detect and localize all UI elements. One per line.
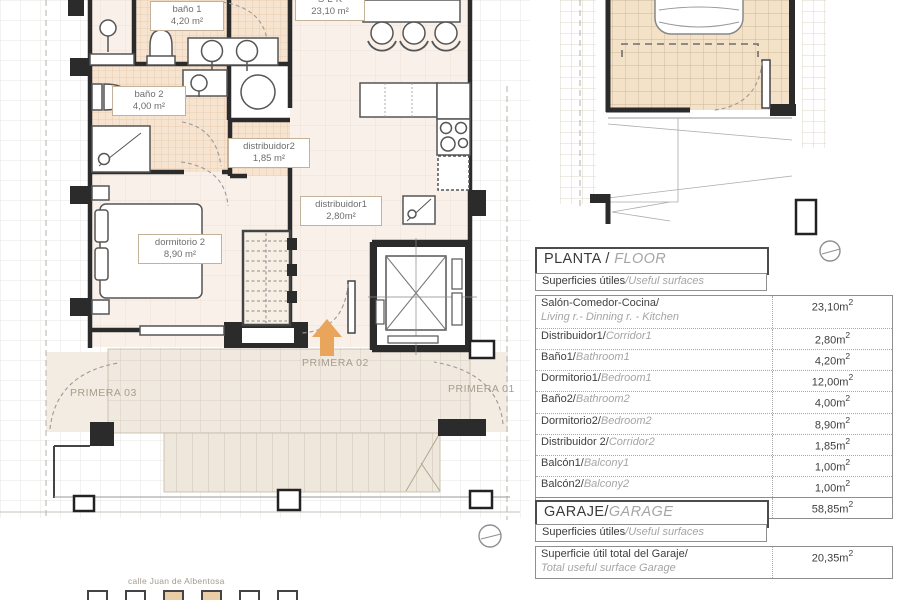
room-area: 8,90 m² xyxy=(142,249,218,261)
floorplan-sheet: S-L-K 23,10 m² baño 1 4,20 m² baño 2 4,0… xyxy=(0,0,900,600)
zone-label-primera-02: PRIMERA 02 xyxy=(302,357,369,369)
garage-floor-plan-drawing xyxy=(560,0,900,262)
apartment-floor-plan-drawing xyxy=(0,0,530,600)
table-row: Salón-Comedor-Cocina/Living r.- Dinning … xyxy=(536,296,892,328)
room-label-distribuidor2: distribuidor2 1,85 m² xyxy=(228,138,310,168)
planta-section-title: PLANTA / FLOOR xyxy=(535,247,769,275)
planta-subtitle: Superficies útiles/Useful surfaces xyxy=(535,273,767,291)
planta-subtitle-es: Superficies útiles xyxy=(542,275,625,287)
table-row: Dormitorio1/Bedroom1 12,00m2 xyxy=(536,370,892,391)
garaje-title-es: GARAJE/ xyxy=(544,504,609,520)
table-row: Balcón1/Balcony1 1,00m2 xyxy=(536,455,892,476)
car-symbol xyxy=(655,0,743,34)
room-label-dormitorio2: dormitorio 2 8,90 m² xyxy=(138,234,222,264)
garaje-title-en: GARAGE xyxy=(609,504,673,520)
garaje-subtitle-es: Superficies útiles xyxy=(542,526,625,538)
room-name: S-L-K xyxy=(318,0,342,5)
room-name: distribuidor2 xyxy=(243,141,295,152)
garaje-subtitle: Superficies útiles/Useful surfaces xyxy=(535,524,767,542)
table-row: Balcón2/Balcony2 1,00m2 xyxy=(536,476,892,497)
room-area: 23,10 m² xyxy=(299,6,361,18)
room-label-bano2: baño 2 4,00 m² xyxy=(112,86,186,116)
planta-title-es: PLANTA / xyxy=(544,251,614,267)
planta-surfaces-table: Salón-Comedor-Cocina/Living r.- Dinning … xyxy=(535,295,893,519)
room-name: dormitorio 2 xyxy=(155,237,205,248)
stairs xyxy=(243,231,297,325)
table-row: Baño2/Bathroom2 4,00m2 xyxy=(536,391,892,412)
table-row: Distribuidor1/Corridor1 2,80m2 xyxy=(536,328,892,349)
section-marker-icon xyxy=(820,241,840,261)
table-row: Superficie útil total del Garaje/Total u… xyxy=(536,547,892,578)
room-area: 4,00 m² xyxy=(116,101,182,113)
table-row: Baño1/Bathroom1 4,20m2 xyxy=(536,349,892,370)
room-name: baño 1 xyxy=(172,4,201,15)
room-name: distribuidor1 xyxy=(315,199,367,210)
zone-label-primera-01: PRIMERA 01 xyxy=(448,383,515,395)
room-name: baño 2 xyxy=(134,89,163,100)
street-label: calle Juan de Albentosa xyxy=(128,576,225,586)
room-area: 2,80m² xyxy=(304,211,378,223)
room-area: 4,20 m² xyxy=(154,16,220,28)
section-marker-icon xyxy=(479,525,501,547)
planta-subtitle-en: /Useful surfaces xyxy=(625,275,704,287)
table-row: Dormitorio2/Bedroom2 8,90m2 xyxy=(536,413,892,434)
room-label-bano1: baño 1 4,20 m² xyxy=(150,1,224,31)
zone-label-primera-03: PRIMERA 03 xyxy=(70,387,137,399)
planta-title-en: FLOOR xyxy=(614,251,666,267)
room-area: 1,85 m² xyxy=(232,153,306,165)
garaje-surfaces-table: Superficie útil total del Garaje/Total u… xyxy=(535,546,893,579)
garaje-subtitle-en: /Useful surfaces xyxy=(625,526,704,538)
elevator xyxy=(368,238,477,355)
room-label-slk: S-L-K 23,10 m² xyxy=(295,0,365,21)
table-row: Distribuidor 2/Corridor2 1,85m2 xyxy=(536,434,892,455)
room-label-distribuidor1: distribuidor1 2,80m² xyxy=(300,196,382,226)
